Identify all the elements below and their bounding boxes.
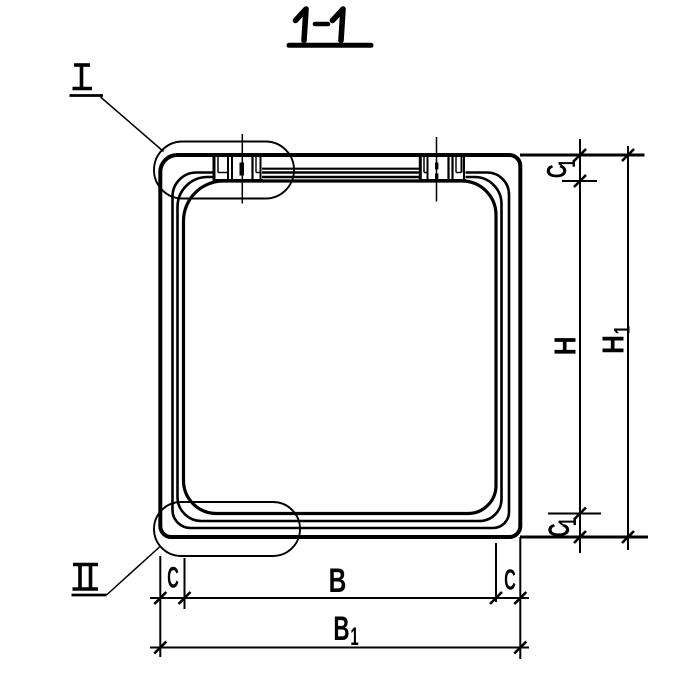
svg-text:1: 1 [554, 518, 582, 526]
svg-text:B: B [329, 562, 347, 600]
svg-text:H: H [597, 335, 631, 354]
svg-text:1: 1 [554, 159, 581, 167]
svg-text:C: C [167, 561, 179, 594]
svg-text:H: H [549, 336, 583, 355]
svg-text:1: 1 [611, 325, 635, 334]
svg-text:B: B [333, 610, 349, 648]
svg-text:C: C [504, 564, 516, 596]
svg-text:1: 1 [350, 623, 358, 651]
